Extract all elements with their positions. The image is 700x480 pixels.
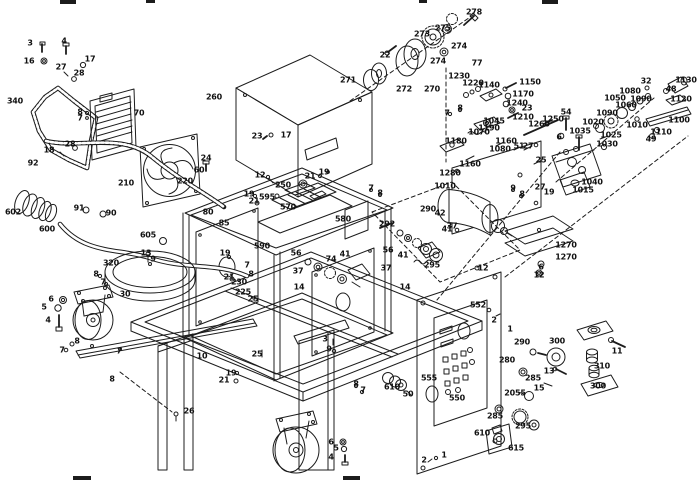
caster-rear [273, 411, 348, 473]
bearing-cluster-290 [305, 182, 520, 287]
motor-1010 [438, 141, 541, 236]
top-cover-260 [236, 55, 372, 197]
caster-front-30 [55, 285, 113, 352]
pulley-train-270 [350, 13, 478, 101]
hoses [12, 141, 247, 276]
handle-300 [505, 136, 688, 396]
exploded-drawing [0, 0, 700, 480]
parts-diagram-page: 3164172728340877028189260260091902102202… [0, 0, 700, 480]
plates-1270 [505, 216, 573, 276]
bracket-cluster-1200 [440, 68, 569, 164]
knob-group [495, 348, 566, 430]
sheet-metal-bottom [76, 274, 364, 470]
front-door-552 [383, 272, 513, 474]
page-crop-artifacts [60, 0, 558, 480]
